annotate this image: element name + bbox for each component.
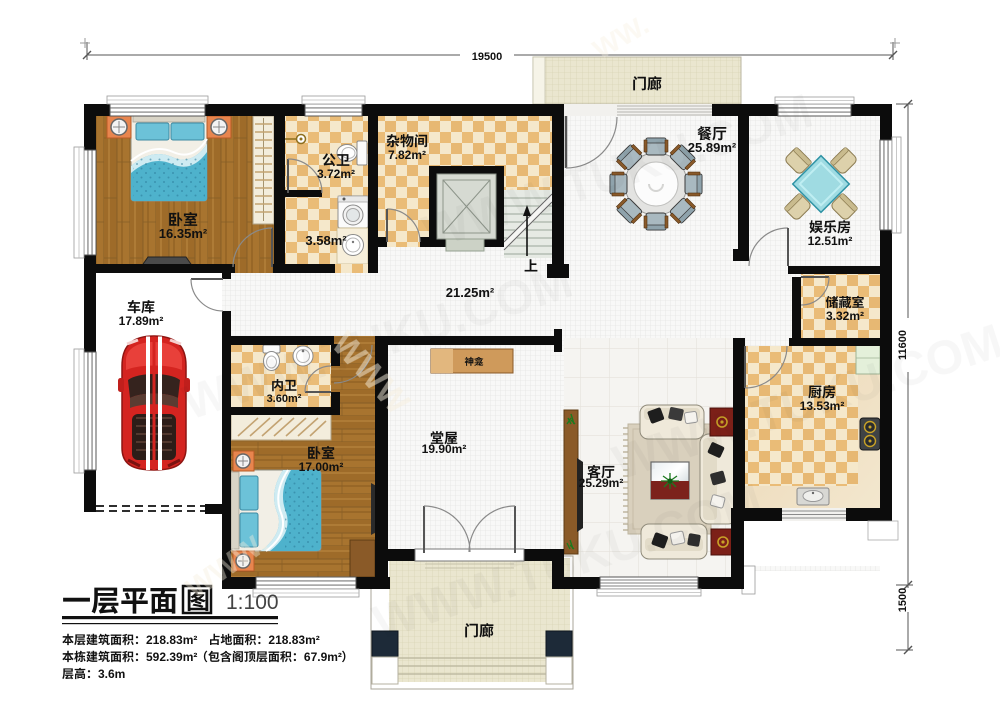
svg-text:1500: 1500: [897, 588, 909, 612]
svg-text:3.58m²: 3.58m²: [305, 233, 347, 248]
svg-text:592.39m²: 592.39m²: [146, 650, 197, 664]
svg-text:12.51m²: 12.51m²: [808, 234, 853, 248]
svg-text:67.9m²: 67.9m²: [304, 650, 342, 664]
svg-text:7.82m²: 7.82m²: [388, 148, 426, 162]
svg-text:19.90m²: 19.90m²: [422, 442, 467, 456]
svg-text:1:100: 1:100: [226, 591, 279, 614]
svg-text:3.32m²: 3.32m²: [826, 309, 864, 323]
svg-text:19500: 19500: [472, 51, 503, 63]
svg-text:3.6m: 3.6m: [98, 667, 125, 681]
svg-text:218.83m²: 218.83m²: [268, 633, 319, 647]
svg-text:3.72m²: 3.72m²: [317, 167, 355, 181]
svg-text:17.89m²: 17.89m²: [119, 314, 164, 328]
svg-text:16.35m²: 16.35m²: [159, 226, 208, 241]
svg-text:17.00m²: 17.00m²: [299, 460, 344, 474]
svg-text:25.29m²: 25.29m²: [579, 476, 624, 490]
svg-text:218.83m²: 218.83m²: [146, 633, 197, 647]
